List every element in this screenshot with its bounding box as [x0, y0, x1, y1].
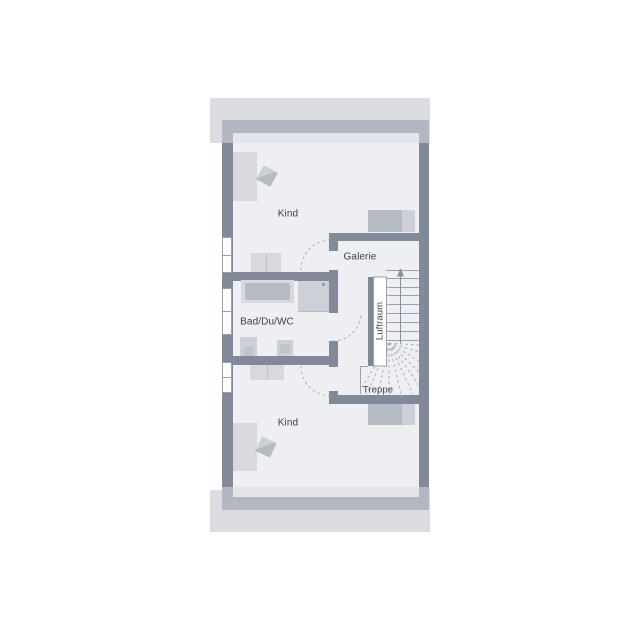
- room-label-bad: Bad/Du/WC: [240, 317, 294, 328]
- bed-right-kind-bottom: [368, 404, 415, 425]
- wall-stairs-bottom: [329, 395, 429, 404]
- desk-kind-top: [251, 253, 281, 272]
- wall-exterior-right: [419, 120, 429, 510]
- window-kind-top: [222, 237, 232, 273]
- wall-center-stub-bottom: [329, 391, 338, 404]
- room-label-treppe: Treppe: [363, 385, 393, 396]
- toilet-bowl: [244, 347, 253, 356]
- wall-center-stub-top: [329, 241, 338, 251]
- room-label-galerie: Galerie: [344, 252, 377, 263]
- wall-luftraum-rail: [368, 277, 374, 366]
- room-label-kind-bottom: Kind: [278, 418, 298, 429]
- wall-bath-bottom: [233, 356, 338, 365]
- shower-drain-icon: [322, 283, 325, 286]
- wall-center-shower: [329, 270, 338, 313]
- room-label-kind-top: Kind: [278, 209, 298, 220]
- window-bath: [222, 288, 232, 335]
- roof-shadow-bottom: [222, 487, 430, 510]
- bed-right-kind-top: [368, 210, 415, 232]
- bed-kind-bottom: [233, 423, 257, 471]
- desk-kind-bottom: [250, 365, 284, 380]
- floor-plan-page: Kind Galerie Bad/Du/WC Luftraum Treppe K…: [0, 0, 636, 636]
- room-label-luftraum: Luftraum: [375, 302, 386, 340]
- wall-center-mid: [329, 341, 338, 367]
- bed-kind-top: [233, 152, 257, 201]
- roof-shadow-top: [222, 120, 430, 143]
- bathtub-inner: [245, 283, 290, 300]
- wall-galerie-top: [329, 233, 429, 241]
- washbasin-bowl: [280, 344, 290, 353]
- window-kind-bottom: [222, 362, 232, 393]
